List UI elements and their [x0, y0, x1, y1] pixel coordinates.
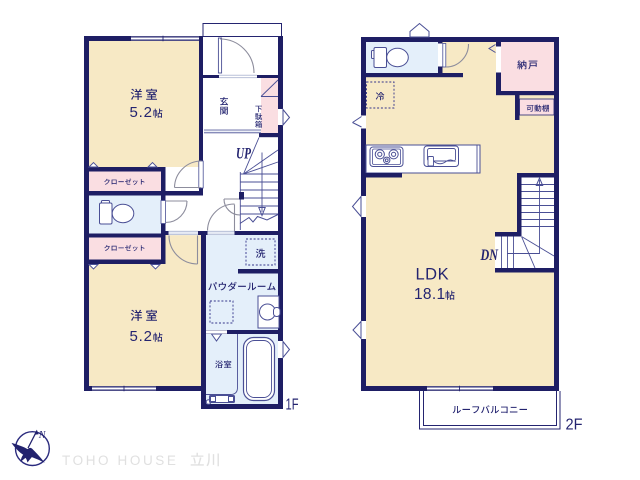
svg-text:LDK: LDK: [416, 266, 450, 284]
svg-text:5.2: 5.2: [130, 104, 153, 121]
svg-text:1F: 1F: [286, 397, 299, 414]
svg-text:DN: DN: [480, 247, 499, 264]
svg-text:N: N: [38, 430, 47, 441]
svg-text:TOHO HOUSE: TOHO HOUSE: [62, 453, 179, 468]
svg-text:18.1: 18.1: [414, 286, 445, 303]
svg-text:2F: 2F: [566, 417, 583, 434]
svg-text:UP: UP: [236, 146, 251, 163]
svg-text:5.2: 5.2: [130, 328, 153, 345]
